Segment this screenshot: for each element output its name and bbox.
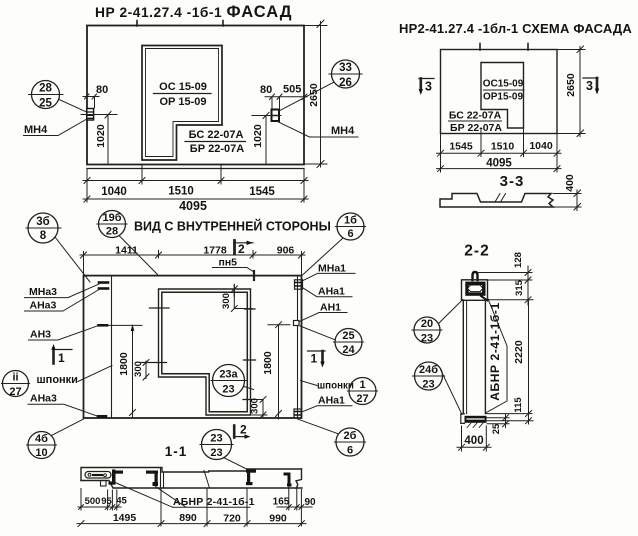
svg-text:1б: 1б — [344, 215, 357, 227]
svg-text:пн5: пн5 — [219, 257, 238, 269]
svg-text:МНа3: МНа3 — [29, 286, 57, 298]
svg-text:990: 990 — [269, 513, 287, 525]
svg-text:95: 95 — [101, 496, 112, 507]
svg-text:1510: 1510 — [168, 186, 194, 198]
svg-text:8: 8 — [40, 230, 47, 242]
svg-text:2650: 2650 — [565, 73, 577, 97]
svg-text:6: 6 — [347, 228, 353, 240]
svg-text:3-3: 3-3 — [500, 173, 525, 190]
svg-text:115: 115 — [513, 397, 524, 413]
svg-text:27: 27 — [356, 393, 368, 405]
svg-text:23: 23 — [210, 447, 222, 459]
svg-text:БР 22-07А: БР 22-07А — [450, 122, 502, 134]
svg-text:1: 1 — [359, 379, 365, 391]
svg-text:23: 23 — [222, 384, 234, 396]
svg-text:БС 22-07А: БС 22-07А — [189, 129, 244, 141]
svg-text:1545: 1545 — [249, 186, 275, 198]
svg-text:80: 80 — [260, 84, 272, 96]
svg-text:33: 33 — [339, 62, 352, 74]
svg-text:6: 6 — [347, 445, 353, 457]
svg-text:24: 24 — [342, 344, 355, 356]
svg-text:1495: 1495 — [113, 512, 137, 524]
svg-text:АНа3: АНа3 — [30, 300, 57, 312]
svg-text:АНа1: АНа1 — [318, 286, 345, 298]
svg-text:МНа1: МНа1 — [318, 263, 346, 275]
svg-text:1411: 1411 — [115, 245, 138, 257]
svg-text:ii: ii — [12, 372, 18, 384]
svg-text:шпонки: шпонки — [37, 374, 78, 386]
svg-text:4095: 4095 — [486, 158, 512, 170]
svg-text:4б: 4б — [35, 433, 48, 445]
svg-text:25: 25 — [491, 423, 502, 434]
svg-text:НР2-41.27.4 -1бл-1 СХЕМА ФАСАД: НР2-41.27.4 -1бл-1 СХЕМА ФАСАДА — [399, 21, 632, 36]
svg-text:890: 890 — [179, 512, 197, 524]
svg-text:165: 165 — [273, 497, 290, 508]
svg-text:300: 300 — [133, 361, 144, 377]
svg-text:АНа1: АНа1 — [318, 395, 345, 407]
svg-text:28: 28 — [39, 83, 52, 95]
svg-text:ОС15-09: ОС15-09 — [483, 79, 524, 90]
svg-text:2: 2 — [238, 242, 245, 256]
svg-text:1020: 1020 — [95, 124, 107, 148]
svg-text:23: 23 — [210, 433, 222, 445]
svg-text:19б: 19б — [102, 212, 121, 224]
svg-text:1800: 1800 — [262, 351, 274, 375]
svg-text:45: 45 — [116, 496, 127, 507]
svg-text:23: 23 — [422, 379, 434, 391]
svg-text:БС 22-07А: БС 22-07А — [449, 110, 502, 122]
svg-text:300: 300 — [250, 398, 261, 414]
svg-text:МН4: МН4 — [331, 125, 355, 137]
svg-text:10: 10 — [35, 447, 47, 459]
svg-text:25: 25 — [342, 330, 354, 342]
svg-text:1040: 1040 — [529, 140, 553, 152]
svg-text:720: 720 — [223, 513, 241, 525]
svg-text:400: 400 — [464, 435, 483, 447]
svg-text:3: 3 — [425, 80, 432, 94]
svg-text:27: 27 — [9, 386, 21, 398]
svg-text:шпонки: шпонки — [317, 381, 354, 392]
svg-text:НР 2-41.27.4 -1б-1 ФАСАД: НР 2-41.27.4 -1б-1 ФАСАД — [95, 3, 293, 21]
svg-text:1778: 1778 — [203, 245, 227, 257]
svg-text:1545: 1545 — [449, 141, 473, 153]
svg-text:2: 2 — [240, 423, 247, 437]
svg-text:2-2: 2-2 — [464, 243, 489, 260]
svg-text:3б: 3б — [36, 216, 50, 228]
svg-text:23а: 23а — [219, 369, 238, 381]
svg-text:28: 28 — [106, 226, 118, 238]
svg-text:2б: 2б — [344, 430, 357, 442]
svg-text:ОР 15-09: ОР 15-09 — [159, 96, 206, 108]
svg-text:505: 505 — [283, 84, 301, 96]
svg-text:АН1: АН1 — [320, 302, 341, 314]
svg-text:2220: 2220 — [513, 340, 525, 364]
svg-text:128: 128 — [513, 252, 524, 268]
svg-text:3: 3 — [586, 79, 593, 93]
svg-text:МН4: МН4 — [24, 124, 48, 136]
svg-text:1800: 1800 — [118, 352, 130, 376]
svg-text:1040: 1040 — [101, 186, 127, 198]
svg-text:400: 400 — [564, 174, 576, 192]
svg-text:ОС 15-09: ОС 15-09 — [159, 81, 207, 93]
svg-text:25: 25 — [39, 98, 52, 110]
svg-text:500: 500 — [85, 496, 101, 507]
svg-text:2650: 2650 — [308, 83, 320, 107]
svg-text:ВИД С ВНУТРЕННЕЙ СТОРОНЫ: ВИД С ВНУТРЕННЕЙ СТОРОНЫ — [134, 219, 331, 234]
svg-text:4095: 4095 — [179, 199, 207, 213]
svg-text:26: 26 — [339, 77, 352, 89]
svg-text:90: 90 — [304, 497, 316, 508]
svg-text:БР 22-07А: БР 22-07А — [190, 143, 244, 155]
svg-text:23: 23 — [421, 333, 433, 345]
svg-text:80: 80 — [96, 84, 108, 96]
svg-text:1510: 1510 — [491, 141, 515, 153]
svg-text:300: 300 — [221, 293, 232, 309]
svg-text:1020: 1020 — [252, 124, 264, 148]
svg-text:24б: 24б — [419, 364, 438, 376]
svg-text:315: 315 — [514, 279, 525, 296]
svg-text:1: 1 — [58, 351, 65, 365]
svg-text:20: 20 — [421, 318, 433, 330]
svg-text:1-1: 1-1 — [165, 444, 188, 459]
svg-text:АНа3: АНа3 — [30, 393, 57, 405]
svg-text:1: 1 — [311, 352, 318, 366]
svg-text:АН3: АН3 — [30, 329, 51, 341]
svg-text:ОР15-09: ОР15-09 — [483, 92, 523, 103]
svg-text:906: 906 — [277, 245, 295, 257]
